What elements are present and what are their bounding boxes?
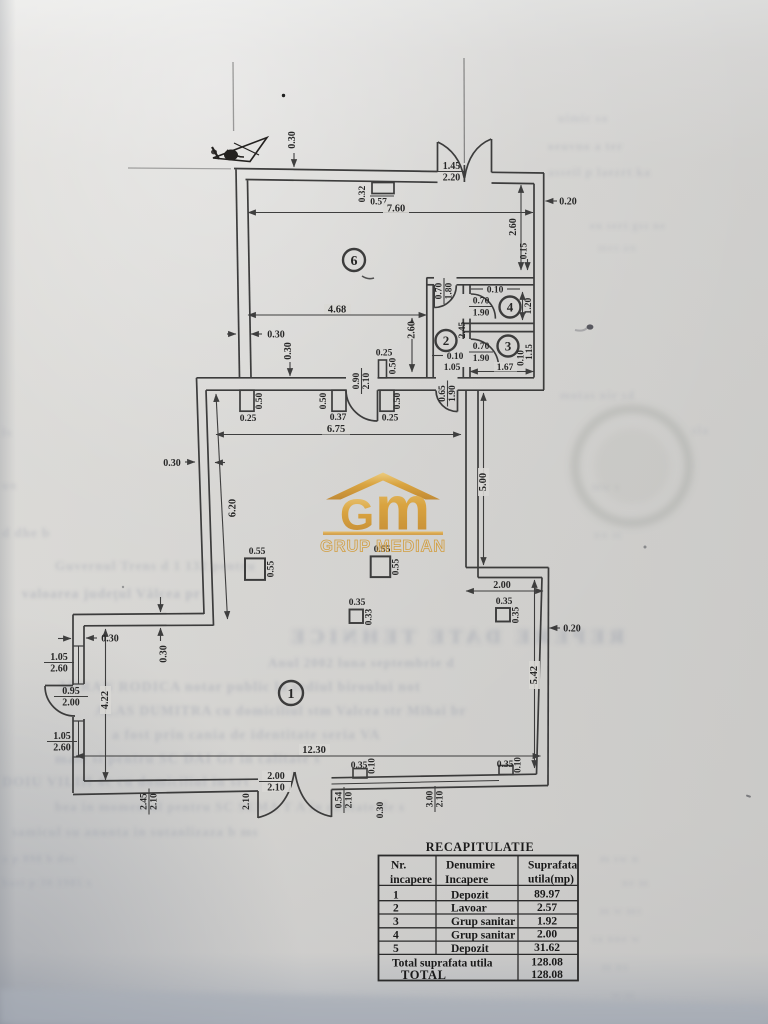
svg-text:nn m: nn m [594,529,622,541]
svg-text:DOIU VILIH 4c cu domicili: DOIU VILIH 4c cu domiciliul in srt [2,775,250,790]
svg-text:2.60: 2.60 [53,743,71,754]
svg-text:0.30: 0.30 [287,131,298,149]
svg-text:4.22: 4.22 [100,691,111,709]
svg-text:0.30: 0.30 [101,634,119,645]
svg-text:0.55: 0.55 [249,547,266,557]
svg-text:Incapere: Incapere [445,874,488,886]
svg-text:Denumire: Denumire [446,860,495,872]
svg-text:ls: ls [2,425,12,439]
svg-text:a p 898 b dec: a p 898 b dec [2,853,76,865]
svg-text:3: 3 [505,339,512,354]
svg-text:m sw n: m sw n [600,853,639,865]
svg-text:Lavoar: Lavoar [451,903,487,915]
svg-text:motas nir sd: motas nir sd [560,388,635,402]
svg-text:0.35: 0.35 [512,606,522,623]
svg-text:12.30: 12.30 [302,745,326,756]
svg-text:0.65: 0.65 [438,385,448,402]
svg-text:1.90: 1.90 [448,385,458,402]
svg-text:0.35: 0.35 [349,598,366,608]
svg-text:oeuvno a ter: oeuvno a ter [548,139,623,153]
svg-text:en sert gss ne: en sert gss ne [590,220,666,232]
svg-text:0.70: 0.70 [473,297,490,307]
svg-text:2: 2 [393,903,399,915]
svg-text:5.00: 5.00 [478,473,489,491]
svg-text:mes an: mes an [598,242,637,254]
svg-text:2.60: 2.60 [50,664,68,675]
svg-text:0.25: 0.25 [382,414,399,424]
svg-text:0.30: 0.30 [376,801,386,818]
svg-text:0.25: 0.25 [376,349,393,359]
svg-text:hast p 30 1985 s: hast p 30 1985 s [2,877,92,889]
svg-text:incapere: incapere [390,874,432,886]
svg-text:5: 5 [393,943,399,955]
svg-text:2.10: 2.10 [345,791,355,808]
svg-text:2.00: 2.00 [537,929,557,941]
svg-text:2.10: 2.10 [150,793,160,810]
svg-text:6.75: 6.75 [327,424,345,435]
svg-text:sa nne w: sa nne w [592,933,640,945]
svg-text:1.05: 1.05 [53,731,71,742]
svg-text:128.08: 128.08 [531,969,563,981]
svg-text:4.68: 4.68 [328,305,346,316]
svg-text:2: 2 [443,333,450,348]
svg-text:sla: sla [692,423,709,437]
svg-text:0.15: 0.15 [520,242,530,259]
svg-text:1: 1 [288,687,295,702]
svg-text:0.70: 0.70 [473,342,490,352]
svg-text:4: 4 [393,930,399,942]
svg-text:2.00: 2.00 [493,580,511,591]
svg-text:GRUP MEDIAN: GRUP MEDIAN [320,538,446,556]
svg-text:0.30: 0.30 [283,342,294,360]
svg-text:male si pentru SC DAI Gr: male si pentru SC DAI Gr in calitate s [55,752,321,767]
svg-text:RECAPITULATIE: RECAPITULATIE [426,840,534,854]
svg-text:0.50: 0.50 [389,357,399,374]
svg-text:3: 3 [393,916,399,928]
svg-text:Nr.: Nr. [391,860,406,872]
svg-text:2.00: 2.00 [267,771,285,782]
svg-text:d dhe b: d dhe b [2,525,50,540]
svg-text:Grup sanitar: Grup sanitar [451,916,515,928]
svg-text:0.50: 0.50 [393,392,403,409]
svg-text:0.55: 0.55 [392,558,402,575]
svg-text:0.30: 0.30 [158,645,169,663]
svg-text:6.20: 6.20 [227,499,238,517]
svg-text:m ns: m ns [602,961,628,973]
svg-text:0.25: 0.25 [240,414,257,424]
svg-text:Anul 2002 luna septembrie: Anul 2002 luna septembrie d [268,655,455,670]
svg-text:0.35: 0.35 [351,761,368,771]
svg-text:0.30: 0.30 [163,458,181,469]
svg-text:w m: w m [612,989,635,1001]
svg-text:1.67: 1.67 [497,363,514,373]
svg-text:7.60: 7.60 [387,204,405,215]
svg-text:samicul su anunta in s: samicul su anunta in sutanlizaza b ms [12,824,259,839]
svg-text:m w ms: m w ms [600,905,642,917]
svg-text:0.55: 0.55 [267,560,277,577]
svg-text:ALAS DUMITRA cu domiciliul: ALAS DUMITRA cu domiciliul stm Valcea st… [95,703,467,718]
svg-text:Grup sanitar: Grup sanitar [451,930,515,942]
svg-text:un: un [2,478,17,492]
svg-text:2.57: 2.57 [537,902,557,914]
svg-text:2.10: 2.10 [242,793,252,810]
svg-text:0.35: 0.35 [497,760,514,770]
svg-text:89.97: 89.97 [534,889,560,901]
svg-text:1.05: 1.05 [50,652,68,663]
svg-text:2.10: 2.10 [267,783,285,794]
svg-text:MIRAN RODICA notar public: MIRAN RODICA notar public la sediul biro… [60,680,421,695]
svg-text:2.10: 2.10 [436,790,446,807]
svg-text:0.20: 0.20 [563,624,581,635]
svg-text:0.90: 0.90 [352,372,362,389]
svg-text:3.00: 3.00 [426,790,436,807]
svg-text:valoarea judeţul Vâlcea p: valoarea judeţul Vâlcea pr [22,586,201,601]
svg-text:2.00: 2.00 [62,698,80,709]
svg-text:6: 6 [351,254,358,269]
svg-text:asseil p laezrt ka: asseil p laezrt ka [548,165,651,179]
svg-text:ne m: ne m [622,877,649,889]
svg-text:Depozit: Depozit [451,943,489,955]
svg-text:TOTAL: TOTAL [401,968,447,982]
svg-text:2.60: 2.60 [508,218,519,236]
svg-text:0.20: 0.20 [559,197,577,208]
svg-text:2.10: 2.10 [362,372,372,389]
svg-text:4: 4 [507,300,514,315]
svg-text:1.45: 1.45 [443,161,461,172]
svg-text:31.62: 31.62 [534,942,560,954]
svg-text:2.45: 2.45 [140,793,150,810]
svg-text:5.42: 5.42 [529,666,540,684]
svg-text:2.60: 2.60 [406,321,417,339]
svg-text:0.10: 0.10 [487,286,504,296]
svg-text:0.50: 0.50 [319,392,329,409]
svg-text:a fost prin cania de: a fost prin cania de identitate seria VA [112,728,381,743]
svg-text:1.05: 1.05 [444,363,461,373]
svg-text:1.80: 1.80 [445,282,455,299]
svg-text:0.50: 0.50 [255,392,265,409]
svg-text:0.33: 0.33 [365,608,375,625]
svg-text:0.35: 0.35 [496,597,513,607]
svg-text:0.30: 0.30 [267,330,285,341]
svg-text:0.10: 0.10 [513,757,523,773]
svg-text:0.32: 0.32 [358,185,368,202]
svg-text:0.95: 0.95 [62,686,80,697]
svg-text:uimic so: uimic so [558,111,608,125]
svg-text:0.37: 0.37 [330,413,347,423]
svg-text:128.08: 128.08 [531,957,563,969]
svg-text:0.54: 0.54 [335,791,345,808]
svg-text:utila(mp): utila(mp) [528,874,574,886]
svg-text:0.70: 0.70 [435,282,445,299]
svg-text:1.20: 1.20 [524,297,534,314]
svg-text:1: 1 [393,889,399,901]
svg-text:2.45: 2.45 [458,321,468,338]
svg-text:1.90: 1.90 [473,354,490,364]
svg-text:1.15: 1.15 [524,344,534,360]
svg-text:1.92: 1.92 [537,915,557,927]
svg-text:2.20: 2.20 [443,173,461,184]
svg-text:Depozit: Depozit [451,889,489,901]
svg-text:0.10: 0.10 [367,758,377,774]
svg-text:1.90: 1.90 [473,309,490,319]
svg-text:Suprafata: Suprafata [528,860,577,872]
svg-text:0.10: 0.10 [447,352,464,362]
